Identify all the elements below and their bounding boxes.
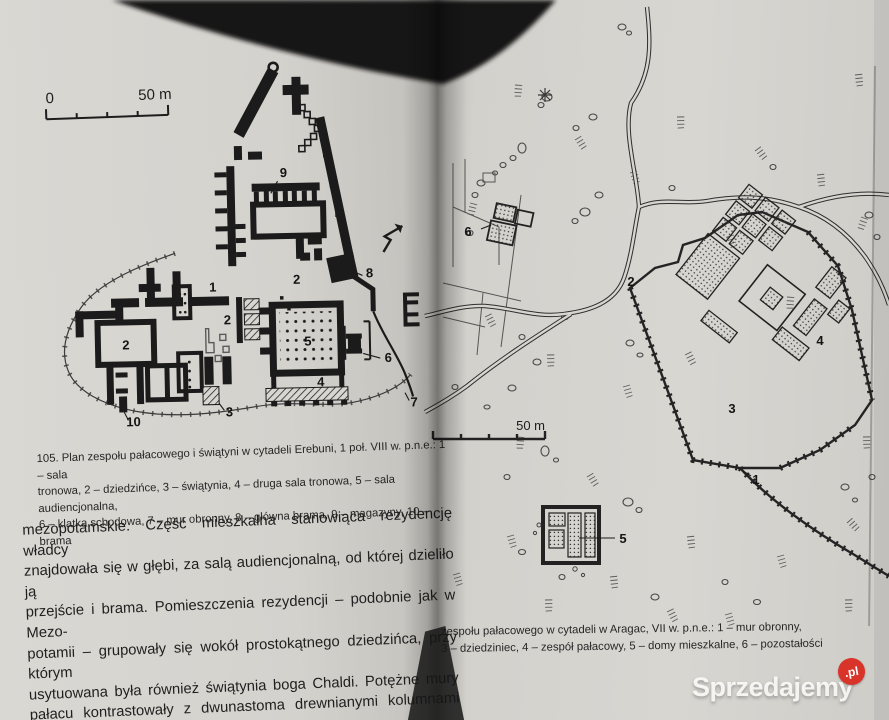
plan-label-3: 3 [226,404,234,419]
building-5 [533,507,599,577]
aragac-plan: 1 2 3 4 5 6 50 m [425,55,889,625]
plan-label-2a: 2 [122,337,130,352]
plan-label-9: 9 [280,165,288,180]
plan-label-5: 5 [304,334,312,349]
plan-label-5: 5 [619,531,626,546]
plan-label-6: 6 [384,350,392,365]
body-text: mezopotamskie. Część mieszkalna stanowią… [22,503,464,720]
plan-label-7: 7 [410,394,418,409]
plan-label-2b: 2 [224,312,232,327]
plan-label-3: 3 [728,401,735,416]
plan-label-1: 1 [209,280,217,295]
watermark-tld: .pl [843,663,859,679]
erebuni-plan: 1 2 2 2 3 4 5 6 7 8 9 10 [46,52,434,450]
plan-label-4: 4 [816,333,824,348]
building-6 [487,203,534,248]
page-edge [874,0,889,720]
north-arrow-icon [377,221,404,255]
watermark: Sprzedajemy .pl [690,648,889,712]
watermark-brand: Sprzedajemy [692,672,853,703]
book-photo: 0 50 m [0,0,889,720]
plan-label-2c: 2 [293,272,301,287]
right-scale-bar: 50 m [433,418,545,439]
plan-label-8: 8 [366,265,374,280]
plan-walls [70,60,421,414]
plan-label-6: 6 [464,224,471,239]
plan-label-10: 10 [126,414,141,429]
scale-50m: 50 m [516,418,545,433]
citadel-wall [630,212,889,576]
rock-mark [538,88,552,102]
palace-complex [663,183,872,388]
plan-label-2: 2 [627,274,634,289]
excavation-lines [443,159,521,355]
plan-label-1: 1 [752,472,759,487]
plan-label-4: 4 [317,374,325,389]
